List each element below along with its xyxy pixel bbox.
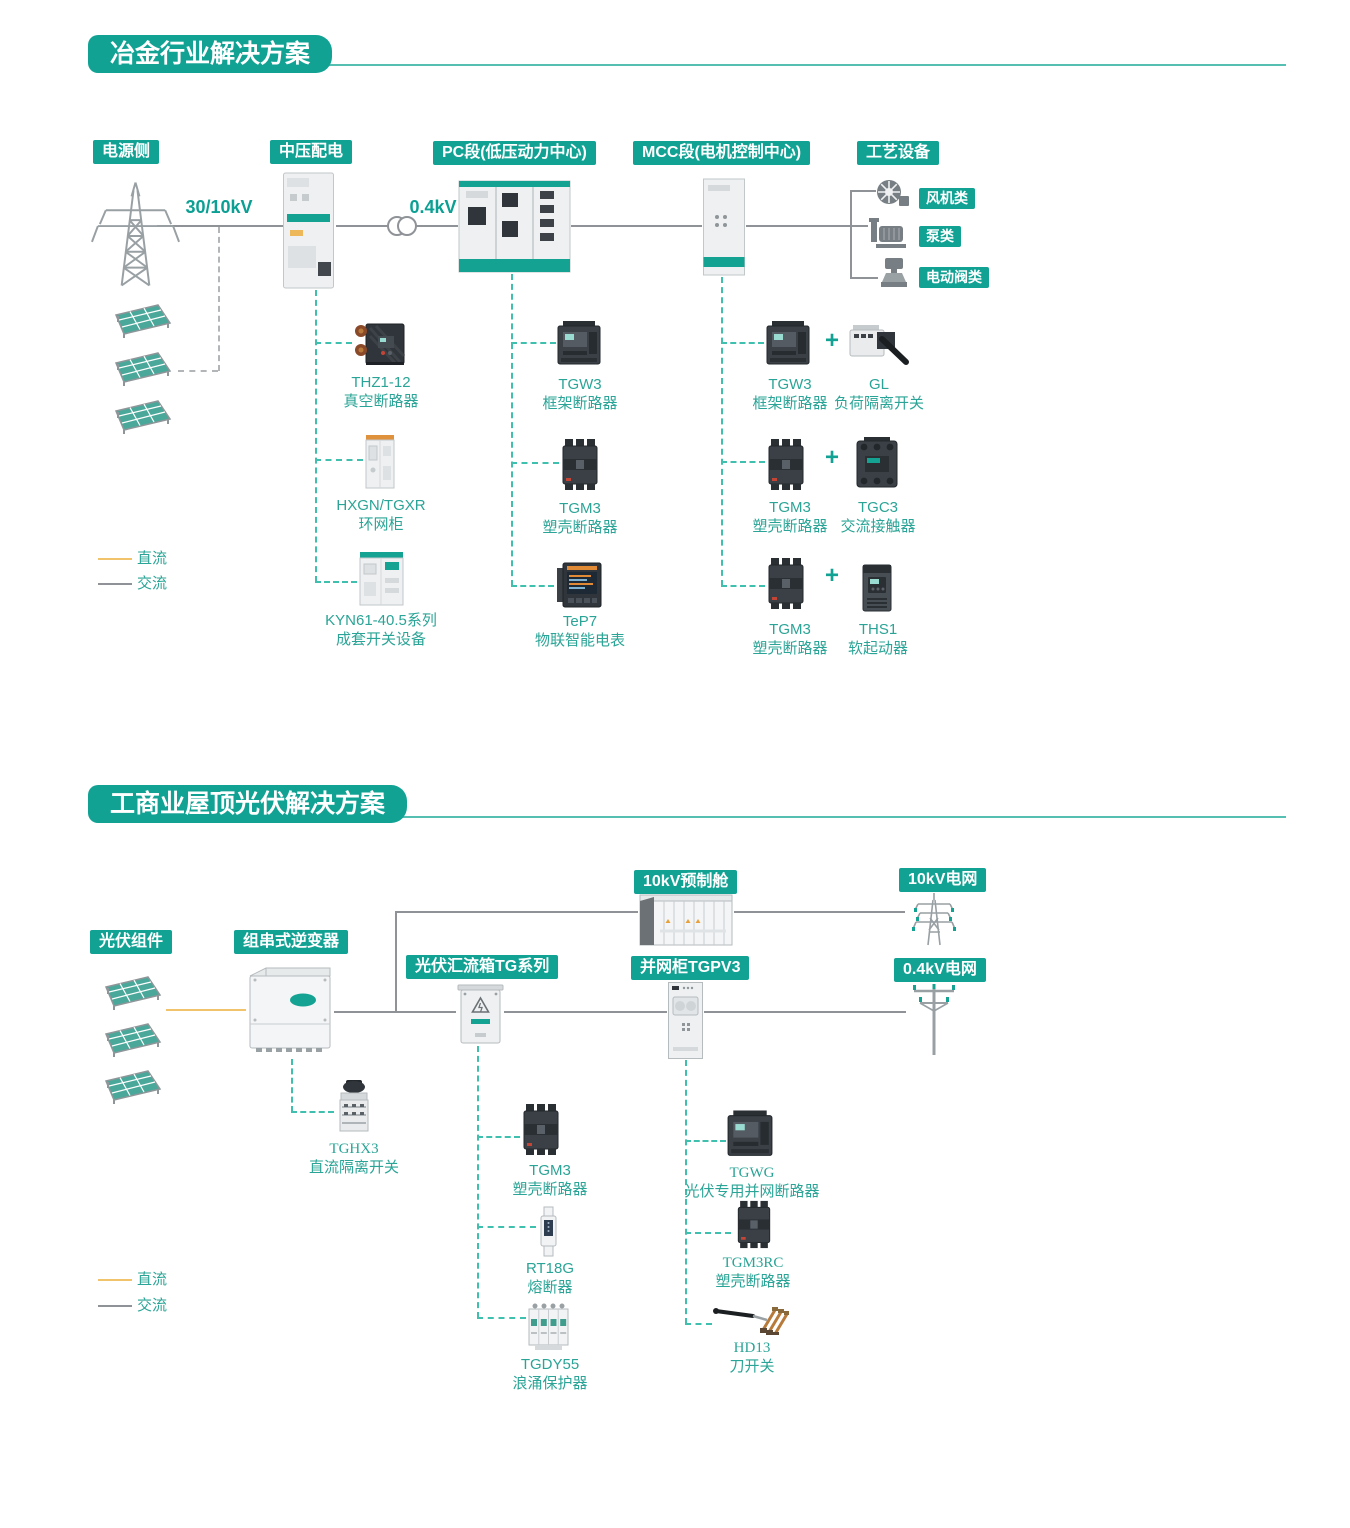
pump-type-badge: 泵类: [919, 226, 961, 247]
solution-diagram-page: 冶金行业解决方案 电源侧 中压配电 PC段(低压动力中心) MCC段(电机控制中…: [0, 0, 1350, 1528]
utility-pole-icon: [908, 979, 960, 1057]
solar-panel-icon: [108, 303, 174, 339]
dashed-connector: [477, 1226, 536, 1228]
dashed-connector: [511, 462, 559, 464]
solar-panel-icon: [98, 1022, 164, 1058]
mcc-cabinet-image: [702, 177, 746, 277]
solar-panel-icon: [108, 399, 174, 435]
device-label: HXGN/TGXR 环网柜: [336, 496, 425, 534]
molded-case-breaker-image: [766, 557, 806, 610]
dashed-connector: [477, 1317, 526, 1319]
switchgear-set-image: [358, 550, 405, 607]
dc-isolator-image: [334, 1075, 372, 1135]
dashed-connector: [721, 461, 765, 463]
molded-case-breaker-image: [521, 1103, 561, 1156]
plus-sign: +: [825, 327, 839, 355]
device-label: TGC3 交流接触器: [840, 498, 915, 536]
vacuum-breaker-image: [352, 322, 408, 367]
ac-line: [850, 277, 878, 279]
section2-title: 工商业屋顶光伏解决方案: [88, 785, 407, 823]
device-label: GL 负荷隔离开关: [834, 375, 924, 413]
pump-icon: [868, 216, 910, 252]
solar-panel-icon: [108, 351, 174, 387]
process-equipment-badge: 工艺设备: [857, 141, 939, 165]
grid-tower-icon: [910, 890, 958, 947]
load-isolation-switch-image: [849, 324, 910, 368]
grid-04kv-badge: 0.4kV电网: [894, 958, 986, 982]
device-label: TGDY55 浪涌保护器: [512, 1355, 587, 1393]
fan-icon: [875, 178, 909, 210]
dashed-connector: [511, 342, 556, 344]
ring-main-unit-image: [364, 434, 396, 489]
device-label: THZ1-12 真空断路器: [343, 373, 418, 411]
ac-line: [704, 1011, 906, 1013]
ac-line: [571, 225, 702, 227]
device-label: TGM3RC 塑壳断路器: [715, 1254, 790, 1292]
device-label: TGWG 光伏专用并网断路器: [684, 1164, 819, 1202]
power-source-badge: 电源侧: [93, 140, 159, 164]
dc-line: [166, 1009, 246, 1011]
pc-switchgear-image: [458, 179, 571, 274]
string-inverter-badge: 组串式逆变器: [234, 930, 348, 954]
device-label: TGW3 框架断路器: [542, 375, 617, 413]
dc-legend-label: 直流: [137, 1272, 167, 1288]
mcc-section-badge: MCC段(电机控制中心): [633, 141, 810, 165]
device-label: TGW3 框架断路器: [752, 375, 827, 413]
ac-line: [734, 911, 905, 913]
air-circuit-breaker-image: [765, 320, 811, 369]
device-label: RT18G 熔断器: [526, 1259, 574, 1297]
valve-type-badge: 电动阀类: [919, 267, 989, 288]
ac-legend-label: 交流: [137, 1298, 167, 1314]
molded-case-breaker-image: [766, 438, 806, 491]
ac-line: [395, 911, 397, 1013]
pv-grid-breaker-image: [726, 1109, 774, 1161]
device-label: TGM3 塑壳断路器: [752, 498, 827, 536]
dashed-connector: [178, 370, 218, 372]
dashed-connector: [721, 277, 723, 586]
dashed-connector: [685, 1140, 726, 1142]
dashed-connector: [315, 342, 352, 344]
dashed-connector: [721, 585, 765, 587]
grid-cabinet-badge: 并网柜TGPV3: [631, 956, 749, 980]
dc-legend-swatch: [98, 558, 132, 560]
dashed-connector: [218, 227, 220, 371]
dashed-connector: [291, 1059, 293, 1112]
device-label: KYN61-40.5系列 成套开关设备: [325, 611, 437, 649]
incoming-voltage-label: 30/10kV: [185, 197, 252, 218]
plus-sign: +: [825, 562, 839, 590]
dashed-connector: [315, 290, 317, 582]
device-label: TGM3 塑壳断路器: [542, 499, 617, 537]
molded-case-breaker-image: [560, 438, 600, 491]
dashed-connector: [291, 1111, 334, 1113]
ac-line: [850, 190, 876, 192]
fuse-image: [537, 1206, 560, 1257]
smart-meter-image: [555, 562, 603, 608]
combiner-box-badge: 光伏汇流箱TG系列: [406, 955, 558, 979]
grid-cabinet-image: [667, 981, 704, 1060]
dashed-connector: [685, 1232, 731, 1234]
pv-modules-badge: 光伏组件: [90, 930, 172, 954]
device-label: TeP7 物联智能电表: [535, 612, 625, 650]
mv-cabinet-image: [282, 170, 335, 290]
lv-voltage-label: 0.4kV: [409, 197, 456, 218]
dashed-connector: [315, 581, 357, 583]
ac-legend-label: 交流: [137, 576, 167, 592]
ac-line: [336, 225, 388, 227]
ac-line: [850, 191, 852, 279]
plus-sign: +: [825, 444, 839, 472]
dashed-connector: [477, 1046, 479, 1318]
transmission-tower-icon: [88, 176, 183, 288]
mv-distribution-badge: 中压配电: [270, 140, 352, 164]
ac-legend-swatch: [98, 1305, 132, 1307]
ac-contactor-image: [854, 436, 900, 492]
solar-panel-icon: [98, 975, 164, 1011]
dashed-connector: [511, 274, 513, 586]
fan-type-badge: 风机类: [919, 188, 975, 209]
dc-legend-swatch: [98, 1279, 132, 1281]
air-circuit-breaker-image: [556, 320, 602, 369]
valve-icon: [878, 257, 910, 290]
grid-10kv-badge: 10kV电网: [899, 868, 986, 892]
prefab-cabin-image: [638, 891, 734, 947]
device-label: TGM3 塑壳断路器: [512, 1161, 587, 1199]
soft-starter-image: [861, 563, 893, 613]
dashed-connector: [315, 459, 363, 461]
ac-line: [504, 1011, 667, 1013]
prefab-cabin-badge: 10kV预制舱: [634, 870, 737, 894]
molded-case-breaker-image: [731, 1200, 777, 1249]
ac-legend-swatch: [98, 583, 132, 585]
ac-line: [334, 1011, 456, 1013]
device-label: TGHX3 直流隔离开关: [309, 1140, 399, 1178]
pc-section-badge: PC段(低压动力中心): [433, 141, 596, 165]
dashed-connector: [685, 1323, 712, 1325]
string-inverter-image: [246, 966, 334, 1058]
surge-protector-image: [527, 1301, 570, 1353]
dashed-connector: [721, 342, 764, 344]
dc-legend-label: 直流: [137, 551, 167, 567]
section1-title: 冶金行业解决方案: [88, 35, 332, 73]
solar-panel-icon: [98, 1069, 164, 1105]
dashed-connector: [511, 585, 554, 587]
device-label: TGM3 塑壳断路器: [752, 620, 827, 658]
combiner-box-image: [457, 981, 504, 1046]
dashed-connector: [477, 1136, 520, 1138]
ac-line: [396, 911, 638, 913]
knife-switch-image: [711, 1304, 789, 1335]
device-label: THS1 软起动器: [848, 620, 908, 658]
device-label: HD13 刀开关: [729, 1339, 774, 1377]
